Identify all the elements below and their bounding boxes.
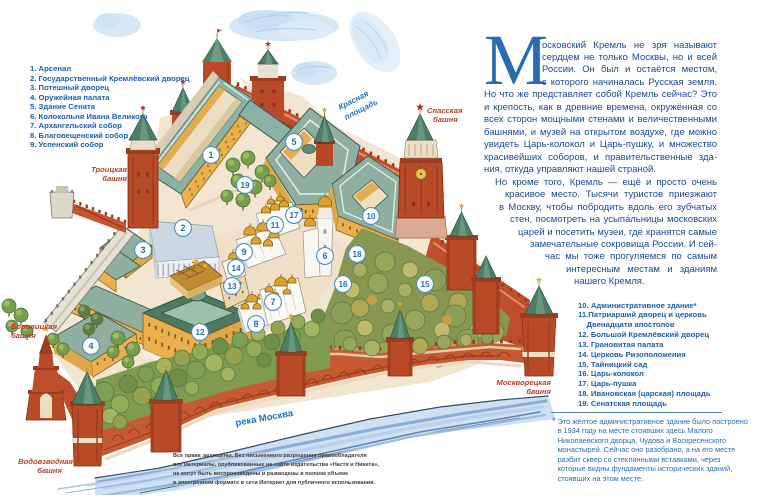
svg-text:башня: башня — [433, 115, 458, 124]
svg-text:4: 4 — [88, 341, 93, 351]
svg-text:башня: башня — [526, 387, 551, 396]
svg-text:13: 13 — [227, 282, 237, 291]
svg-text:2: 2 — [180, 223, 185, 233]
svg-text:Водовзводная: Водовзводная — [18, 457, 73, 466]
svg-text:17: 17 — [289, 211, 299, 220]
svg-text:5: 5 — [291, 137, 296, 147]
svg-text:башня: башня — [102, 174, 127, 183]
svg-text:14: 14 — [231, 264, 241, 273]
svg-text:19: 19 — [240, 181, 250, 190]
svg-text:Москворецкая: Москворецкая — [497, 378, 552, 387]
svg-text:12: 12 — [195, 328, 205, 337]
svg-text:3: 3 — [140, 245, 145, 255]
svg-text:башня: башня — [37, 466, 62, 475]
svg-text:Троицкая: Троицкая — [91, 165, 127, 174]
svg-text:7: 7 — [270, 297, 275, 307]
svg-text:6: 6 — [322, 251, 327, 261]
svg-text:9: 9 — [241, 247, 246, 257]
svg-text:1: 1 — [208, 150, 213, 160]
svg-text:Боровицкая: Боровицкая — [11, 322, 58, 331]
svg-text:Спасская: Спасская — [427, 106, 463, 115]
svg-text:река Москва: река Москва — [235, 408, 295, 429]
svg-text:15: 15 — [420, 280, 430, 289]
svg-text:11: 11 — [271, 221, 280, 230]
svg-text:8: 8 — [253, 319, 258, 329]
svg-text:башня: башня — [11, 331, 36, 340]
svg-text:18: 18 — [352, 250, 362, 259]
svg-text:16: 16 — [338, 280, 348, 289]
svg-text:10: 10 — [366, 212, 376, 221]
